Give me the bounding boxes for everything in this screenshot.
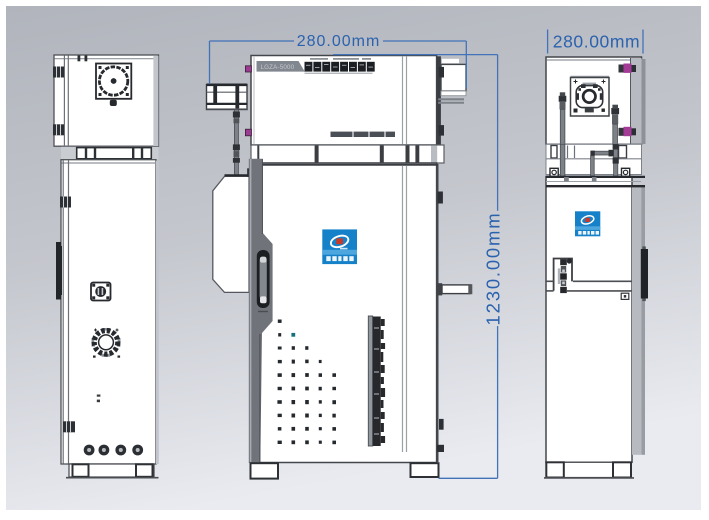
svg-text:LGZA-5000: LGZA-5000 [261, 64, 295, 71]
svg-text:280.00mm: 280.00mm [553, 32, 640, 52]
svg-text:1230.00mm: 1230.00mm [482, 212, 503, 326]
svg-text:280.00mm: 280.00mm [297, 33, 381, 50]
